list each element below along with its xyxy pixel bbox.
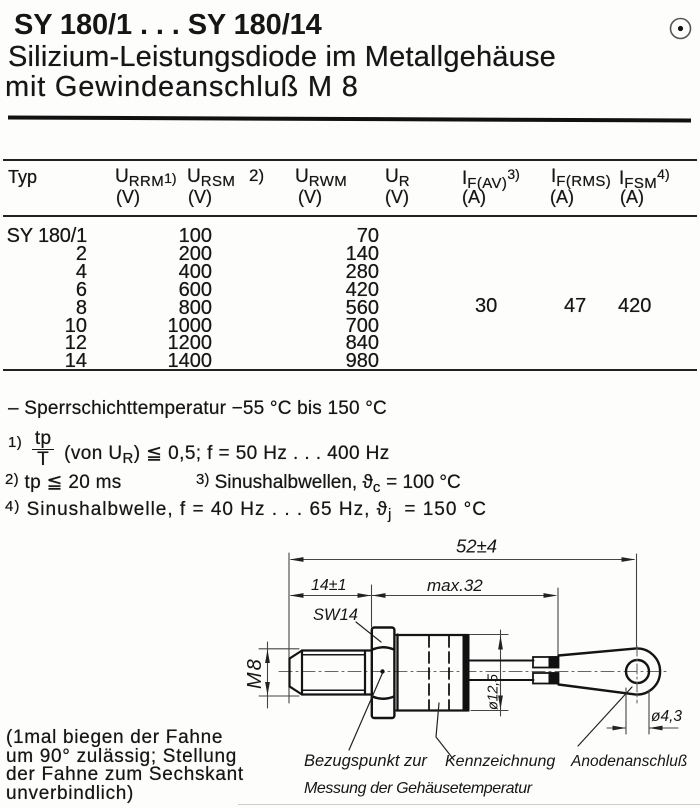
svg-text:Messung der Gehäusetemperatur: Messung der Gehäusetemperatur <box>304 780 533 797</box>
svg-text:Anodenanschluß: Anodenanschluß <box>570 753 687 770</box>
svg-text:14±1: 14±1 <box>311 577 346 594</box>
svg-text:M8: M8 <box>244 657 266 689</box>
svg-text:Bezugspunkt zur: Bezugspunkt zur <box>304 752 428 770</box>
svg-text:ø4,3: ø4,3 <box>651 708 682 725</box>
svg-text:max.32: max.32 <box>427 576 483 595</box>
svg-text:52±4: 52±4 <box>456 536 497 557</box>
svg-text:SW14: SW14 <box>313 606 358 624</box>
svg-text:Kennzeichnung: Kennzeichnung <box>445 753 555 770</box>
svg-text:ø12,5: ø12,5 <box>486 673 502 710</box>
